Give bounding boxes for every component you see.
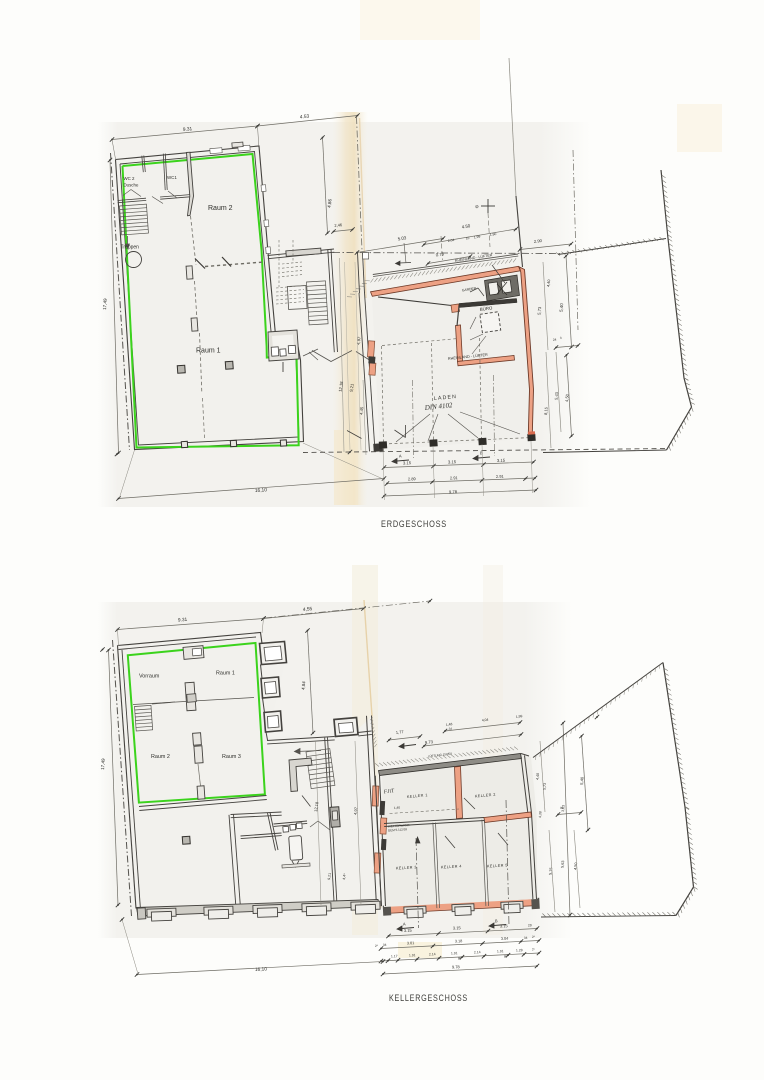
svg-text:2.91: 2.91 (450, 475, 459, 480)
svg-text:1,77: 1,77 (396, 729, 405, 735)
svg-text:9.31: 9.31 (183, 126, 193, 133)
svg-text:17,49: 17,49 (102, 298, 108, 310)
svg-text:Treppen: Treppen (121, 245, 140, 251)
svg-text:34: 34 (524, 936, 528, 940)
svg-text:2.91: 2.91 (496, 474, 505, 479)
svg-text:WC 2: WC 2 (124, 176, 136, 181)
svg-text:5,43: 5,43 (554, 391, 560, 400)
svg-text:Vorraum: Vorraum (139, 674, 160, 680)
svg-text:3.15: 3.15 (448, 459, 457, 464)
svg-text:Raum 2: Raum 2 (208, 205, 233, 212)
svg-text:Raum 1: Raum 1 (216, 671, 235, 677)
svg-text:ERDGESCHOSS: ERDGESCHOSS (381, 519, 447, 530)
svg-text:Raum 3: Raum 3 (222, 754, 241, 760)
svg-text:9,73: 9,73 (425, 739, 434, 745)
svg-text:1,99: 1,99 (516, 714, 523, 719)
svg-text:8,15: 8,15 (543, 406, 549, 415)
svg-text:16,10: 16,10 (255, 966, 268, 973)
svg-text:WC1: WC1 (167, 175, 177, 180)
svg-text:4,50: 4,50 (574, 862, 579, 870)
svg-text:4,84: 4,84 (301, 681, 307, 691)
svg-text:4.53: 4.53 (300, 114, 310, 121)
svg-text:5,73: 5,73 (537, 306, 543, 315)
svg-text:3.01: 3.01 (407, 941, 415, 945)
svg-text:24: 24 (553, 338, 557, 342)
svg-text:2.14: 2.14 (474, 950, 481, 954)
svg-text:1,40: 1,40 (394, 805, 401, 810)
svg-text:Dusche: Dusche (124, 183, 139, 188)
svg-text:3.18: 3.18 (455, 939, 463, 943)
svg-text:4,50: 4,50 (564, 393, 570, 402)
svg-text:⊘: ⊘ (475, 204, 479, 209)
svg-text:17,49: 17,49 (100, 758, 106, 770)
svg-text:1.01: 1.01 (451, 951, 458, 955)
svg-text:4,40: 4,40 (536, 773, 541, 780)
svg-text:3.15: 3.15 (453, 925, 462, 930)
svg-text:4,55: 4,55 (303, 606, 313, 613)
svg-text:5,63: 5,63 (561, 860, 566, 868)
svg-text:2.90: 2.90 (534, 238, 543, 244)
svg-text:Raum 1: Raum 1 (196, 348, 221, 355)
svg-text:3.15: 3.15 (403, 460, 412, 465)
svg-text:9.78: 9.78 (449, 489, 458, 494)
svg-text:9.31: 9.31 (178, 617, 188, 624)
svg-text:1.01: 1.01 (497, 949, 504, 953)
svg-text:2.14: 2.14 (429, 952, 436, 956)
svg-text:4,04: 4,04 (482, 718, 489, 723)
svg-text:3.15: 3.15 (497, 458, 506, 463)
svg-text:1.28: 1.28 (516, 948, 523, 952)
svg-text:1.17: 1.17 (391, 954, 398, 958)
svg-text:2,46: 2,46 (334, 222, 343, 228)
svg-text:5,40: 5,40 (559, 303, 565, 313)
svg-text:3.15: 3.15 (500, 923, 509, 928)
svg-text:34: 34 (383, 943, 387, 947)
svg-text:4,45: 4,45 (359, 406, 365, 415)
svg-text:4,38: 4,38 (538, 811, 543, 818)
svg-text:1.01: 1.01 (409, 953, 416, 957)
svg-text:20: 20 (528, 923, 532, 927)
svg-text:16,10: 16,10 (255, 487, 268, 494)
svg-text:.34: .34 (448, 726, 453, 731)
svg-text:9.78: 9.78 (452, 964, 461, 969)
svg-text:5,40: 5,40 (579, 776, 585, 785)
svg-text:KELLERGESCHOSS: KELLERGESCHOSS (389, 993, 468, 1004)
svg-text:3.15: 3.15 (404, 928, 413, 933)
svg-text:5,73: 5,73 (543, 783, 548, 790)
svg-text:2.89: 2.89 (408, 476, 417, 481)
svg-text:Raum 2: Raum 2 (151, 754, 170, 760)
svg-text:3.04: 3.04 (501, 937, 509, 941)
svg-text:4,40: 4,40 (547, 279, 552, 287)
